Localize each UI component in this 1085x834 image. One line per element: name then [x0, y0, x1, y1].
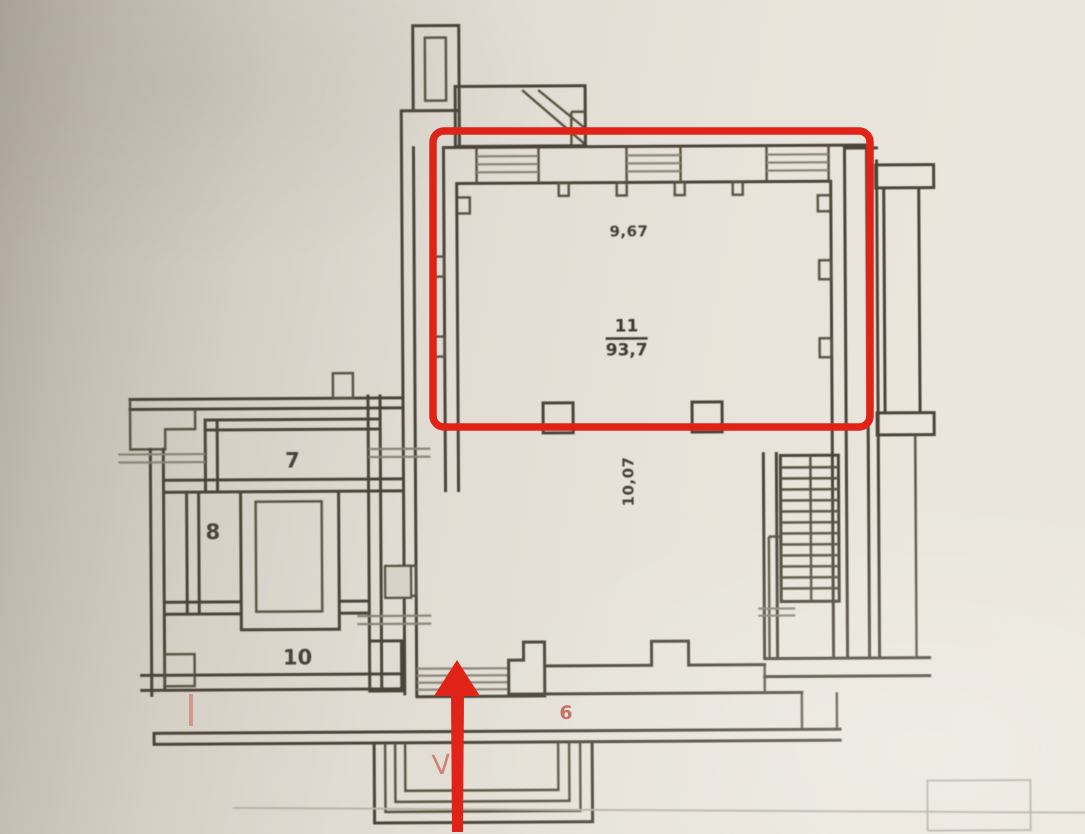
- floor-plan-canvas: 9,67 11 93,7 10,07 7 8 10 6 V: [0, 0, 1085, 834]
- room-8-number: 8: [205, 520, 220, 544]
- arrow-up-icon: [434, 660, 480, 696]
- left-wing: [118, 373, 432, 696]
- room-7-number: 7: [285, 448, 300, 472]
- room-11-number: 11: [615, 316, 639, 336]
- window-band: [443, 145, 866, 214]
- right-exterior-wall: [844, 148, 936, 659]
- upper-vestibule: [455, 86, 585, 147]
- bottom-wall-entrance: [153, 638, 840, 744]
- arrow-tail: [451, 694, 464, 832]
- plan-labels: 9,67 11 93,7 10,07 7 8 10: [204, 222, 652, 670]
- room-10-number: 10: [283, 645, 312, 669]
- red-arrow-annotation: [434, 660, 480, 832]
- porch-steps: [232, 739, 1085, 834]
- room-11-depth-dimension: 10,07: [619, 456, 637, 506]
- scanned-floor-plan: 9,67 11 93,7 10,07 7 8 10 6 V: [0, 0, 1085, 834]
- stairwell: [757, 453, 929, 677]
- room-11-area: 93,7: [606, 340, 648, 360]
- section-number-label: 6: [559, 702, 572, 724]
- entrance-mark-label: V: [431, 749, 452, 781]
- red-annotations: 6 V: [191, 131, 870, 832]
- highlight-rectangle: [433, 131, 870, 427]
- room-11-width-dimension: 9,67: [609, 222, 648, 240]
- left-duct-wall: [397, 148, 416, 694]
